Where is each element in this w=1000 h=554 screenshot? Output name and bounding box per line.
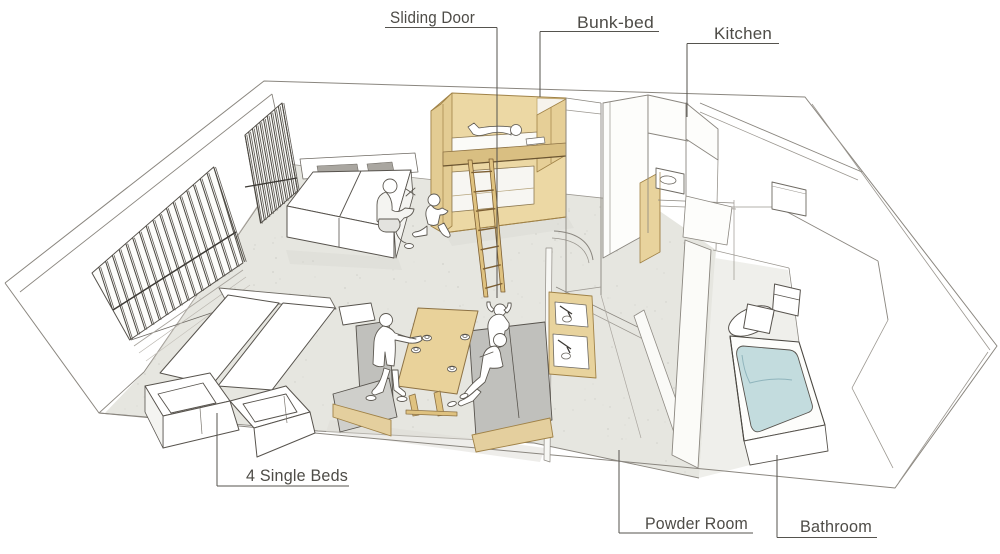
svg-text:Sliding Door: Sliding Door bbox=[390, 9, 475, 27]
svg-text:Powder Room: Powder Room bbox=[645, 515, 748, 533]
svg-text:4 Single Beds: 4 Single Beds bbox=[246, 467, 348, 485]
svg-text:Bathroom: Bathroom bbox=[800, 518, 872, 536]
svg-text:Kitchen: Kitchen bbox=[714, 25, 772, 43]
svg-text:Bunk-bed: Bunk-bed bbox=[577, 14, 654, 32]
